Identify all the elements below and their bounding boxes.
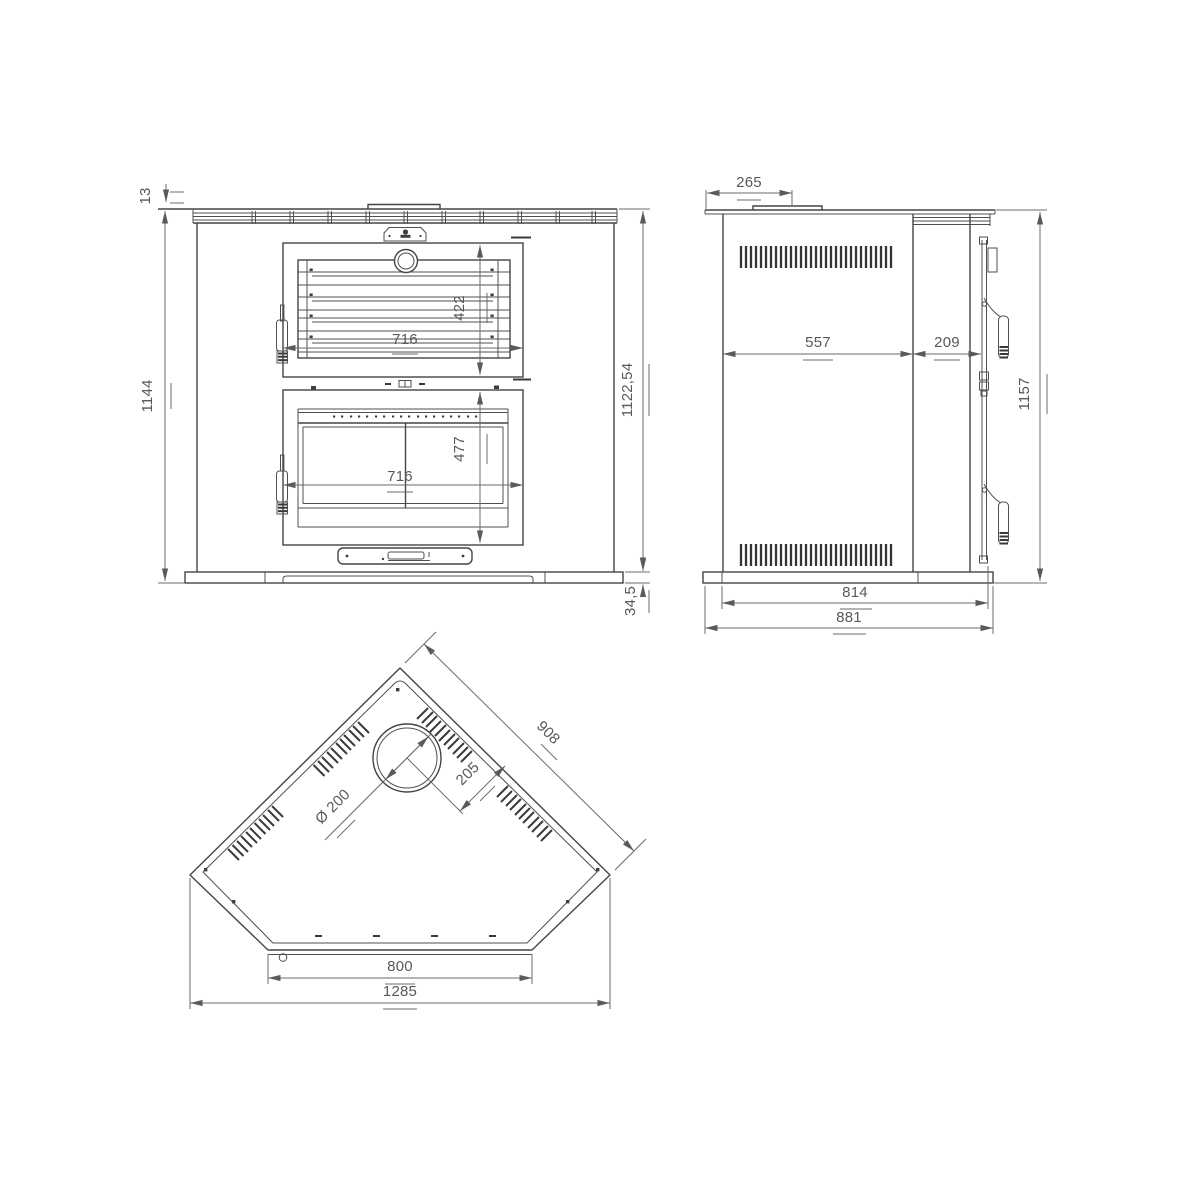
front-base [185,572,623,583]
stove-technical-drawing: 13 1144 422 716 1122,54 34,5 [0,0,1200,1200]
front-dimensions: 13 1144 422 716 1122,54 34,5 [137,184,650,616]
dim-overall-width: 1285 [383,983,417,1000]
air-control-marks [311,381,499,390]
side-view: 265 557 209 1157 814 881 [703,174,1047,634]
dim-side-top-offset: 265 [736,174,762,191]
dim-front-top-lip: 13 [137,187,154,204]
dim-side-base-depth: 814 [842,584,868,601]
side-door-latch [980,372,989,396]
dim-side-door-depth: 209 [934,334,960,351]
front-body-outline [197,223,614,572]
technical-drawing-page: 13 1144 422 716 1122,54 34,5 [0,0,1200,1200]
dim-side-body-depth: 557 [805,334,831,351]
side-top-plate [705,206,995,226]
dim-side-edge-length: 908 [533,718,563,748]
dim-flue-diameter: Ø 200 [312,786,354,828]
front-top-plate [158,205,617,225]
dim-lower-door-height: 477 [451,436,468,462]
dim-flue-to-edge: 205 [453,759,483,789]
ash-drawer [338,548,472,564]
side-vent-slots-top [741,246,891,268]
dim-front-body-height: 1122,54 [619,363,636,418]
dim-lower-door-width: 716 [387,468,413,485]
side-base [703,572,993,583]
side-vent-slots-bottom [741,544,891,566]
top-vent-slots [228,708,552,860]
dim-upper-door-height: 422 [451,295,468,321]
upper-door-handle [277,305,288,363]
dim-side-overall-height: 1157 [1016,377,1033,410]
front-view: 13 1144 422 716 1122,54 34,5 [137,184,650,616]
side-door-edge [980,237,1009,563]
dim-front-base-height: 34,5 [622,586,639,616]
top-dimensions: Ø 200 205 908 800 1285 [190,632,646,1009]
top-outline-outer [190,668,610,950]
dim-upper-door-width: 716 [392,331,418,348]
top-view: Ø 200 205 908 800 1285 [190,632,646,1009]
name-plate [384,228,426,242]
dim-front-overall-height: 1144 [139,379,156,412]
dim-side-base-depth-overall: 881 [836,609,862,626]
top-outline-inner [203,681,597,943]
dim-front-width: 800 [387,958,413,975]
